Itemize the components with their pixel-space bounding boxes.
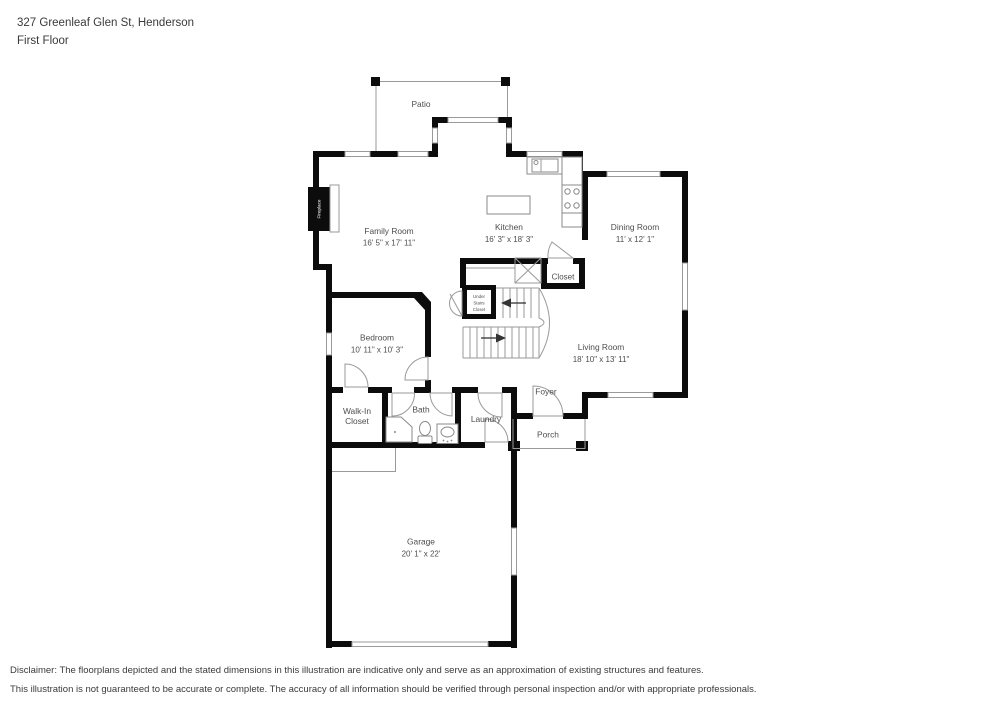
label-living-room: Living Room bbox=[578, 342, 625, 352]
stairs-down-arrow bbox=[481, 334, 506, 343]
floorplan-page: 327 Greenleaf Glen St, Henderson First F… bbox=[0, 0, 1000, 707]
bath-sink bbox=[441, 427, 454, 437]
label-walkin-2: Closet bbox=[345, 416, 369, 426]
label-closet: Closet bbox=[552, 273, 575, 282]
walkin-closet-door bbox=[345, 364, 368, 387]
dims-dining-room: 11' x 12' 1" bbox=[616, 235, 654, 244]
patio-post bbox=[501, 77, 510, 86]
label-foyer: Foyer bbox=[535, 387, 557, 397]
dims-living-room: 18' 10" x 13' 11" bbox=[573, 355, 630, 364]
dims-family-room: 16' 5" x 17' 11" bbox=[363, 239, 415, 248]
label-family-room: Family Room bbox=[364, 226, 413, 236]
hall-door bbox=[430, 393, 452, 416]
dims-garage: 20' 1" x 22' bbox=[402, 550, 441, 559]
porch-post bbox=[508, 441, 520, 451]
toilet-tank bbox=[418, 436, 432, 444]
patio-outline bbox=[371, 77, 510, 151]
bath-door bbox=[392, 393, 415, 416]
label-bath: Bath bbox=[412, 405, 430, 415]
label-bedroom: Bedroom bbox=[360, 333, 394, 343]
porch-post bbox=[576, 441, 588, 451]
label-under-stairs-1: Under bbox=[473, 294, 485, 299]
burner bbox=[565, 203, 570, 208]
fireplace-hearth bbox=[330, 185, 339, 232]
disclaimer-line-2: This illustration is not guaranteed to b… bbox=[10, 680, 757, 699]
bedroom-door bbox=[405, 357, 428, 380]
label-patio: Patio bbox=[411, 99, 430, 109]
kitchen-island bbox=[487, 196, 530, 214]
patio-post bbox=[371, 77, 380, 86]
stairs-up-arrow bbox=[501, 299, 526, 308]
burner bbox=[574, 203, 579, 208]
floorplan-drawing: Patio Family Room 16' 5" x 17' 11" Kitch… bbox=[0, 0, 1000, 707]
label-under-stairs-3: Closet bbox=[473, 307, 486, 312]
label-garage: Garage bbox=[407, 537, 435, 547]
garage-nook bbox=[332, 448, 396, 472]
label-dining-room: Dining Room bbox=[611, 222, 659, 232]
burner bbox=[574, 189, 579, 194]
sink-faucet bbox=[534, 161, 538, 165]
disclaimer: Disclaimer: The floorplans depicted and … bbox=[10, 661, 757, 699]
toilet-bowl bbox=[420, 422, 431, 436]
closet-door bbox=[548, 242, 573, 258]
label-walkin-1: Walk-In bbox=[343, 406, 371, 416]
label-porch: Porch bbox=[537, 430, 559, 440]
shower bbox=[386, 417, 412, 442]
disclaimer-line-1: Disclaimer: The floorplans depicted and … bbox=[10, 661, 757, 680]
burner bbox=[565, 189, 570, 194]
room-labels: Patio Family Room 16' 5" x 17' 11" Kitch… bbox=[317, 99, 660, 559]
garage-door bbox=[352, 642, 488, 647]
dims-kitchen: 16' 3" x 18' 3" bbox=[485, 235, 533, 244]
dims-bedroom: 10' 11" x 10' 3" bbox=[351, 346, 403, 355]
label-kitchen: Kitchen bbox=[495, 222, 523, 232]
label-fireplace: Fireplace bbox=[317, 199, 322, 218]
label-laundry: Laundry bbox=[471, 414, 502, 424]
label-under-stairs-2: Stairs bbox=[473, 301, 485, 306]
staircase bbox=[463, 268, 550, 358]
stove bbox=[562, 185, 582, 213]
